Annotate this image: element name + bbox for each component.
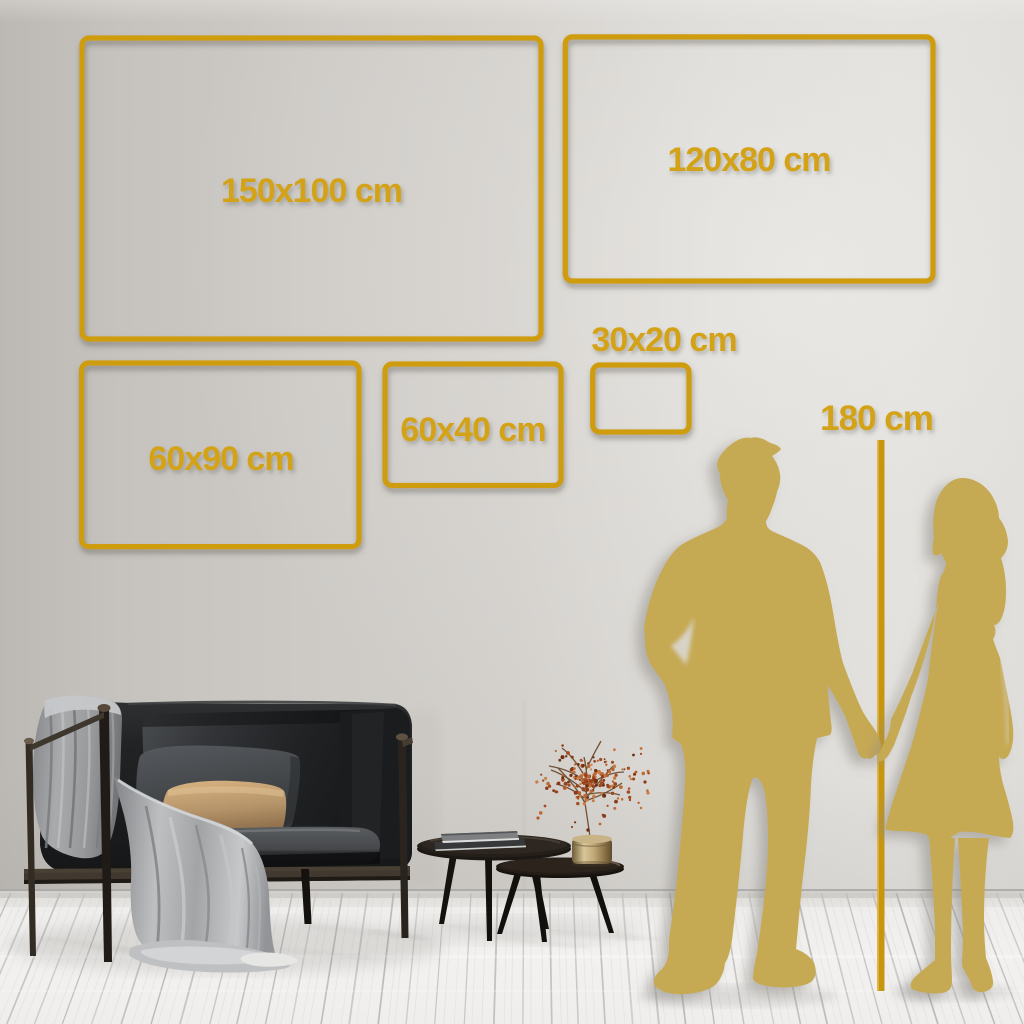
- svg-text:120x80 cm: 120x80 cm: [667, 141, 830, 179]
- svg-text:150x100 cm: 150x100 cm: [221, 172, 402, 210]
- svg-text:30x20 cm: 30x20 cm: [591, 321, 736, 359]
- svg-text:180 cm: 180 cm: [820, 399, 933, 438]
- svg-text:60x40 cm: 60x40 cm: [400, 411, 545, 449]
- svg-text:60x90 cm: 60x90 cm: [148, 440, 293, 478]
